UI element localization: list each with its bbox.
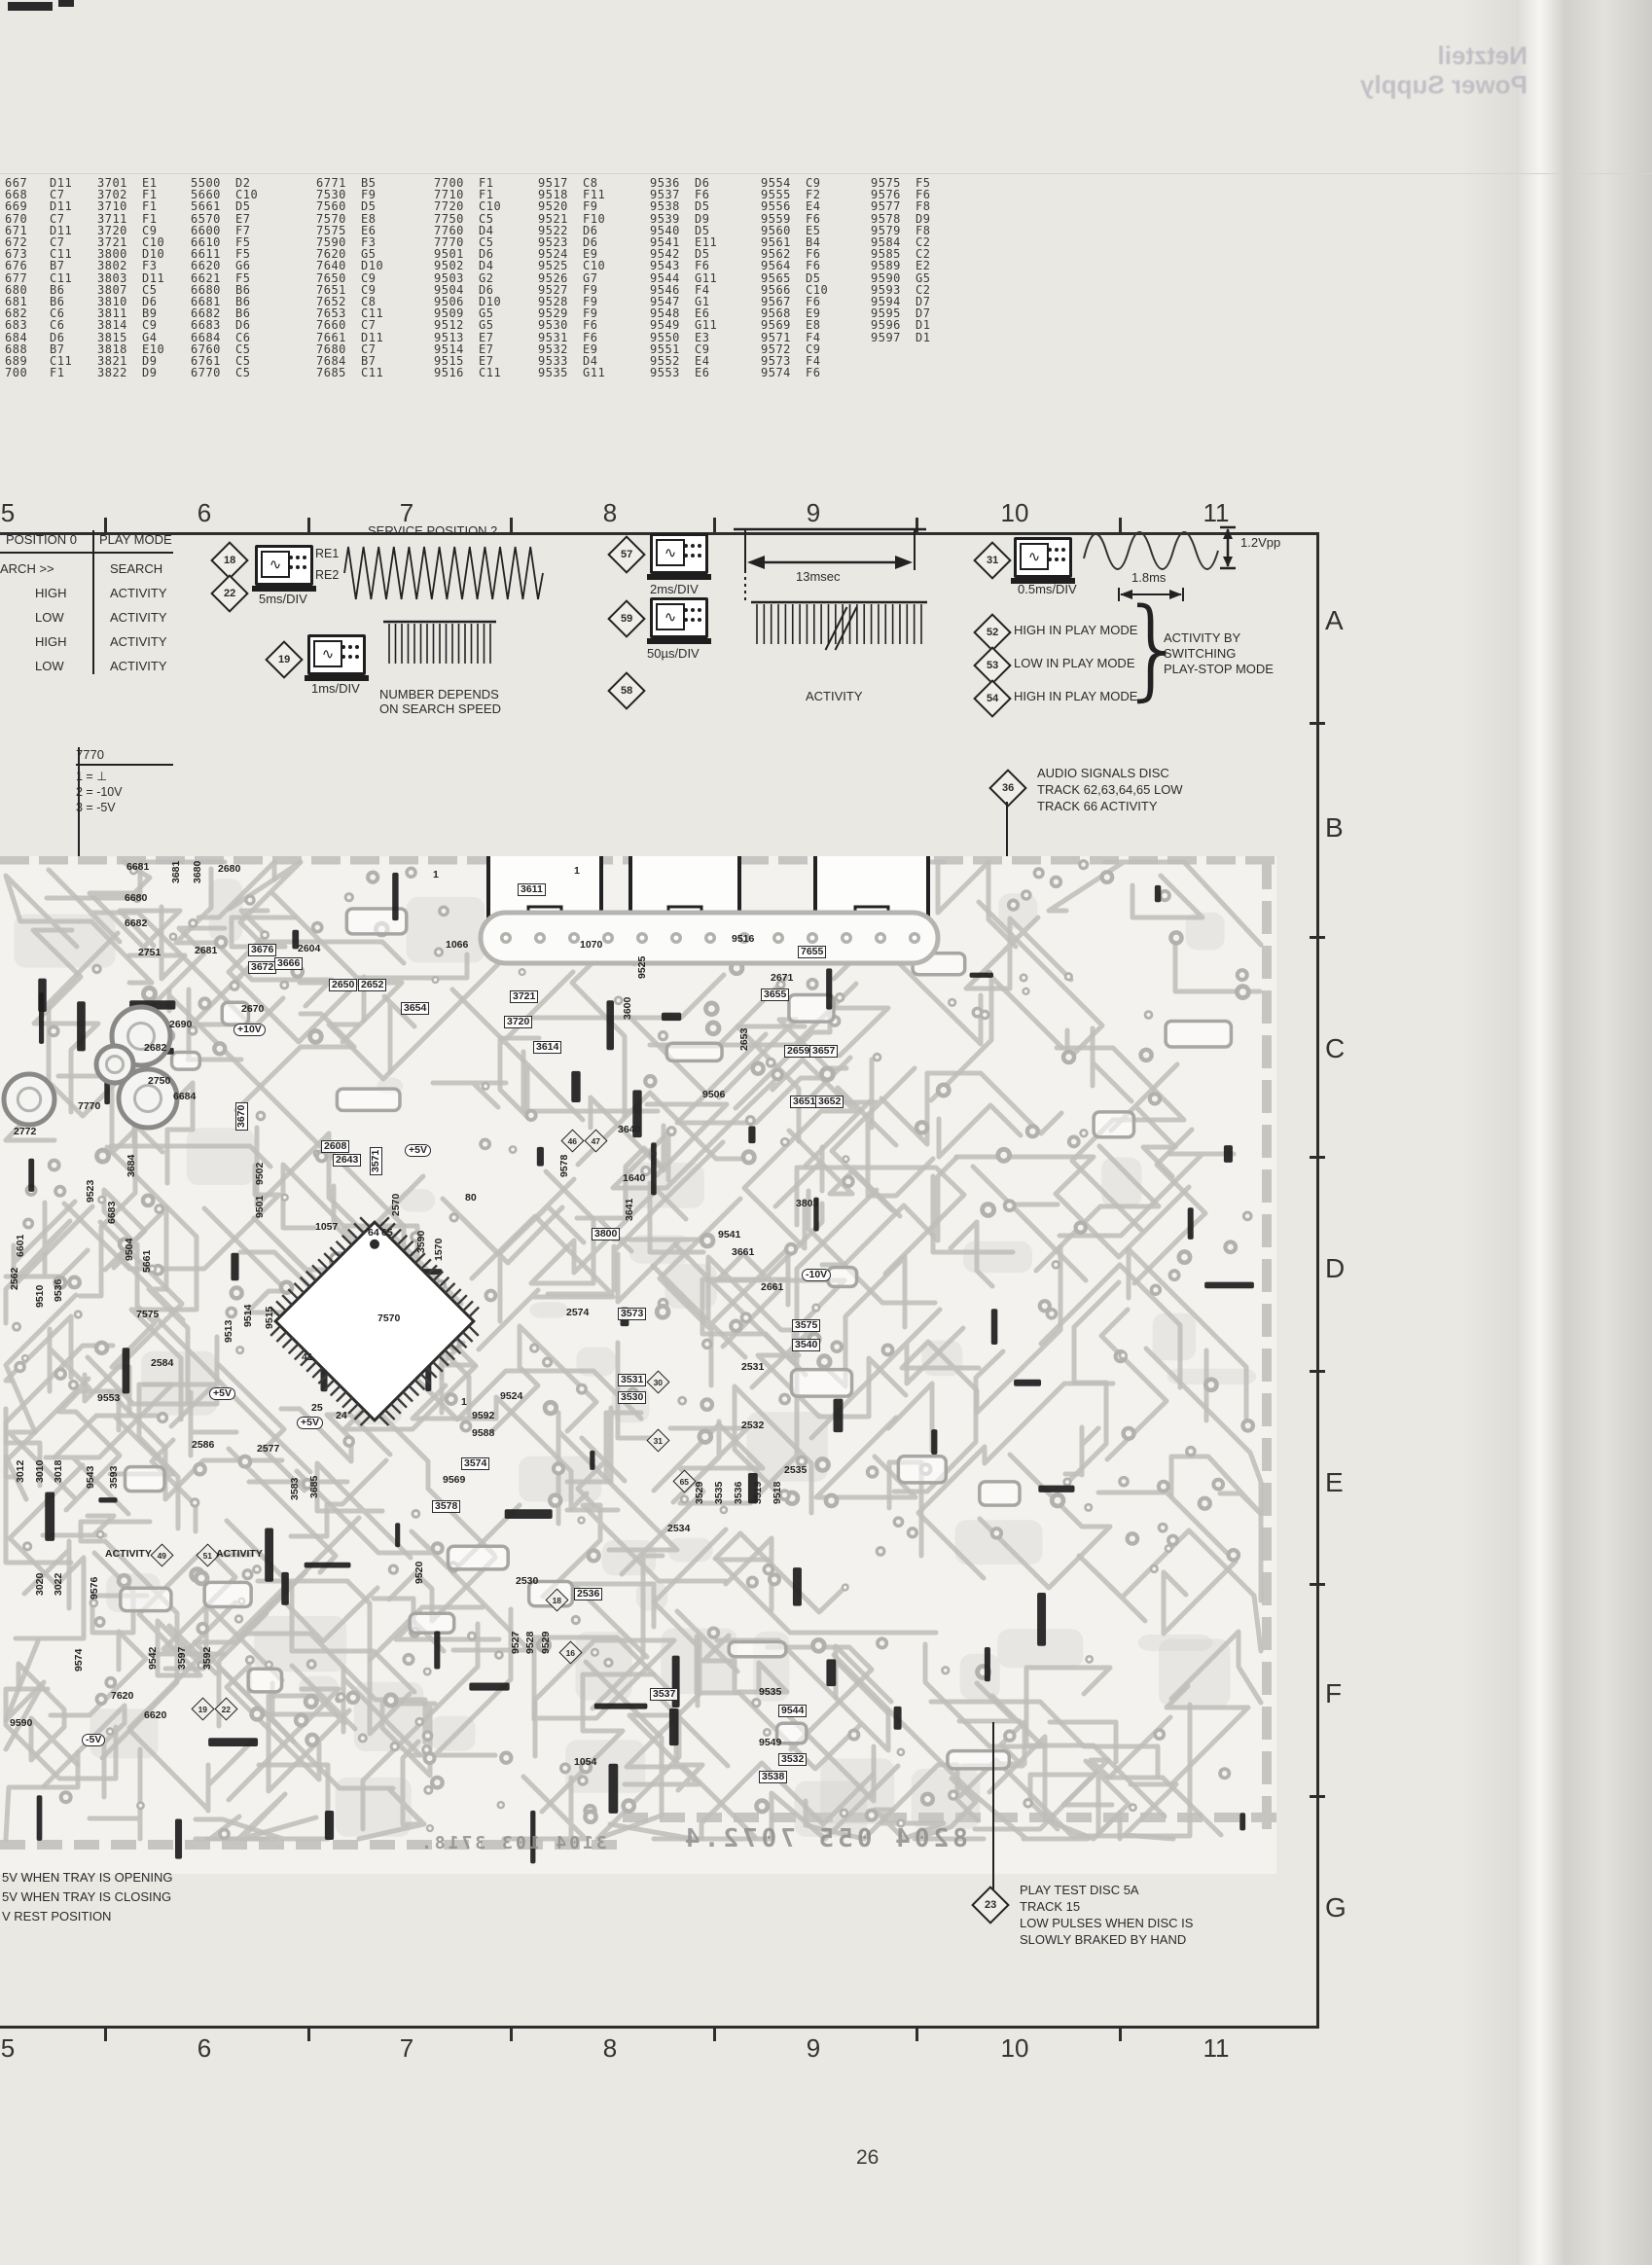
grid-ref: D4 xyxy=(479,260,493,271)
pcb-label: 2535 xyxy=(784,1465,807,1476)
component-ref: 5661 xyxy=(191,200,235,212)
callout-diamond-31: 31 xyxy=(973,541,1012,580)
component-ref: 669 xyxy=(5,200,50,212)
row-boundary-tick xyxy=(1310,936,1325,939)
component-ref: 9559 xyxy=(761,213,806,225)
grid-ref: C5 xyxy=(479,213,493,225)
grid-ref: D5 xyxy=(695,200,709,212)
pcb-label: 3578 xyxy=(432,1500,460,1513)
ruler-number: 9 xyxy=(807,2033,820,2064)
grid-ref: F10 xyxy=(583,213,605,225)
pcb-callout-diamond-65: 65 xyxy=(672,1469,696,1492)
pcb-label: 9553 xyxy=(97,1393,120,1404)
index-entry: 9544G11 xyxy=(650,272,717,284)
activity-comb-waveform xyxy=(749,599,929,652)
scope-unit-05ms: 0.5ms/DIV xyxy=(1018,582,1077,596)
pcb-label: 41 xyxy=(302,1352,313,1363)
mode-state: LOW xyxy=(35,659,64,673)
pcb-label: 9569 xyxy=(443,1475,465,1486)
pcb-label: 9588 xyxy=(472,1428,494,1439)
pcb-label: 9543 xyxy=(86,1466,96,1489)
mode-table-divider xyxy=(92,530,94,674)
index-column: 9517C89518F119520F99521F109522D69523D695… xyxy=(538,177,605,378)
grid-row-letter: D xyxy=(1325,1253,1345,1284)
pcb-label: 2577 xyxy=(257,1444,279,1455)
index-entry: 7660C7 xyxy=(316,319,383,331)
connector-7770-note: 7770 1 = ⊥2 = -10V3 = -5V xyxy=(76,747,183,815)
pcb-label: 9523 xyxy=(86,1180,96,1203)
index-entry: 683C6 xyxy=(5,319,72,331)
pcb-label: 2670 xyxy=(241,1004,264,1015)
index-entry: 6620G6 xyxy=(191,260,258,271)
pcb-label: 3654 xyxy=(401,1002,429,1015)
pcb-label: 2750 xyxy=(148,1076,170,1087)
component-ref: 9516 xyxy=(434,367,479,378)
index-entry: 9535G11 xyxy=(538,367,605,378)
pcb-label: 2586 xyxy=(192,1440,214,1451)
index-entry: 3814C9 xyxy=(97,319,164,331)
index-entry: 7640D10 xyxy=(316,260,383,271)
ruler-number: 5 xyxy=(1,498,15,528)
pcb-label: 1066 xyxy=(446,940,468,951)
grid-ref: C9 xyxy=(361,272,376,284)
pcb-label: 3519 xyxy=(753,1482,764,1504)
index-entry: 3822D9 xyxy=(97,367,164,378)
pcb-label: 1640 xyxy=(623,1173,645,1184)
component-location-index: 667D11668C7669D11670C7671D11672C7673C116… xyxy=(0,177,1002,386)
service-position-title: SERVICE POSITION 2 xyxy=(368,523,497,538)
pcb-label: 3593 xyxy=(109,1466,120,1489)
grid-row-letter: G xyxy=(1325,1892,1347,1923)
scope-unit-1ms: 1ms/DIV xyxy=(311,681,360,696)
component-ref: 9596 xyxy=(871,319,916,331)
pcb-label: 5661 xyxy=(142,1250,153,1273)
pcb-label: 3530 xyxy=(618,1391,646,1404)
scope-knobs-icon xyxy=(698,544,701,548)
component-ref: 9525 xyxy=(538,260,583,271)
pcb-label: 2574 xyxy=(566,1308,589,1318)
pcb-label: 9574 xyxy=(74,1649,85,1672)
pcb-label: 9516 xyxy=(732,934,754,945)
grid-ref: F5 xyxy=(235,272,250,284)
pcb-label: 3529 xyxy=(695,1482,705,1504)
component-ref: 9538 xyxy=(650,200,695,212)
grid-ref: G2 xyxy=(479,272,493,284)
pcb-label: 3657 xyxy=(809,1045,838,1058)
pcb-label: 3676 xyxy=(248,944,276,956)
pcb-label: 3536 xyxy=(734,1482,744,1504)
index-entry: 9589E2 xyxy=(871,260,930,271)
callout-diamond-36: 36 xyxy=(988,769,1027,808)
pcb-label: 6681 xyxy=(126,862,149,873)
pcb-label: 2680 xyxy=(218,864,240,875)
pcb-label: 2682 xyxy=(144,1043,166,1054)
pcb-label: 1 xyxy=(433,870,439,881)
index-entry: 9503G2 xyxy=(434,272,501,284)
grid-ref: C10 xyxy=(583,260,605,271)
pcb-label: 9501 xyxy=(255,1196,266,1218)
scope-knobs-icon xyxy=(698,608,701,612)
component-ref: 9521 xyxy=(538,213,583,225)
index-entry: 9569E8 xyxy=(761,319,828,331)
grid-ref: C9 xyxy=(142,319,157,331)
pcb-label: 7770 xyxy=(78,1101,100,1112)
pcb-callout-diamond-46: 46 xyxy=(560,1129,584,1152)
pcb-label: 3574 xyxy=(461,1457,489,1470)
pcb-callout-diamond-47: 47 xyxy=(584,1129,607,1152)
ruler-number: 6 xyxy=(198,2033,211,2064)
index-entry: 9531F6 xyxy=(538,332,605,343)
play-mode-table: POSITION 0 PLAY MODE ARCH >>SEARCHHIGHAC… xyxy=(0,530,175,676)
scope-screen-icon: ∿ xyxy=(1020,543,1049,570)
component-ref: 9565 xyxy=(761,272,806,284)
ruler-number: 7 xyxy=(400,2033,413,2064)
component-ref: 7661 xyxy=(316,332,361,343)
pcb-label: 9542 xyxy=(148,1647,159,1670)
scope-knobs-icon xyxy=(355,645,359,649)
pcb-callout-diamond-22: 22 xyxy=(214,1697,237,1720)
component-ref: 3803 xyxy=(97,272,142,284)
sine-burst-waveform xyxy=(342,543,547,603)
bleed-through-title: Netzteil Power Supply xyxy=(1236,41,1527,99)
pcb-label: 1 xyxy=(574,866,580,877)
note-line: TRACK 66 ACTIVITY xyxy=(1037,798,1183,814)
index-entry: 9539D9 xyxy=(650,213,717,225)
index-column: 5500D25660C105661D56570E76600F76610F5661… xyxy=(191,177,258,378)
mode-state: HIGH xyxy=(35,586,67,600)
pcb-label: 9515 xyxy=(265,1307,275,1329)
grid-ref: E7 xyxy=(479,332,493,343)
grid-ref: F6 xyxy=(806,367,820,378)
scope-unit-5ms: 5ms/DIV xyxy=(259,592,307,606)
connector-pin-row: 1 = ⊥ xyxy=(76,769,183,784)
index-entry: 9553E6 xyxy=(650,367,717,378)
pcb-label: 9529 xyxy=(541,1632,552,1654)
component-ref: 7660 xyxy=(316,319,361,331)
pcb-label: 3803 xyxy=(796,1199,818,1209)
component-ref: 3815 xyxy=(97,332,142,343)
pcb-label: 2608 xyxy=(321,1140,349,1153)
component-ref: 677 xyxy=(5,272,50,284)
component-ref: 6621 xyxy=(191,272,235,284)
note-line: NUMBER DEPENDS xyxy=(379,687,501,701)
pcb-label: 3597 xyxy=(177,1647,188,1670)
pcb-label: 80 xyxy=(465,1193,477,1204)
grid-ref: C7 xyxy=(50,213,64,225)
component-ref: 9544 xyxy=(650,272,695,284)
component-ref: 9530 xyxy=(538,319,583,331)
index-entry: 9538D5 xyxy=(650,200,717,212)
pcb-callout-diamond-31: 31 xyxy=(646,1428,669,1452)
grid-ref: G4 xyxy=(142,332,157,343)
component-ref: 9526 xyxy=(538,272,583,284)
pcb-label: -10V xyxy=(802,1269,831,1281)
pcb-label: 1057 xyxy=(315,1222,338,1233)
grid-ref: D6 xyxy=(235,319,250,331)
index-entry: 676B7 xyxy=(5,260,72,271)
pcb-label: 9576 xyxy=(90,1577,100,1600)
index-entry: 9549G11 xyxy=(650,319,717,331)
vpp-measure xyxy=(1218,525,1238,570)
component-ref: 7570 xyxy=(316,213,361,225)
grid-ref: C5 xyxy=(235,367,250,378)
callout-diamond-23: 23 xyxy=(971,1886,1010,1924)
connector-pin-row: 3 = -5V xyxy=(76,800,183,815)
scanned-service-manual-page: Netzteil Power Supply 667D11668C7669D116… xyxy=(0,0,1652,2265)
mode-state: ARCH >> xyxy=(0,561,54,576)
pcb-label: 9590 xyxy=(10,1718,32,1729)
component-ref: 9597 xyxy=(871,332,916,343)
pcb-label: 9513 xyxy=(224,1320,234,1343)
grid-ref: D1 xyxy=(916,332,930,343)
connector-7770-rows: 1 = ⊥2 = -10V3 = -5V xyxy=(76,769,183,815)
pcb-label: 6601 xyxy=(16,1235,26,1257)
ruler-tick xyxy=(713,2026,716,2041)
index-entry: 9559F6 xyxy=(761,213,828,225)
pcb-label: 64 xyxy=(368,1228,379,1239)
mode-result: ACTIVITY xyxy=(110,634,167,649)
grid-row-letter: C xyxy=(1325,1033,1345,1064)
component-ref: 6570 xyxy=(191,213,235,225)
index-entry: 9571F4 xyxy=(761,332,828,343)
13msec-label: 13msec xyxy=(796,569,841,584)
component-ref: 6770 xyxy=(191,367,235,378)
grid-ref: F9 xyxy=(583,200,597,212)
callout-diamond-22: 22 xyxy=(210,574,249,613)
callout-leader-line xyxy=(992,1722,994,1897)
grid-ref: D11 xyxy=(361,332,383,343)
pcb-mirrored-part-number: 3104 103 3718. xyxy=(418,1833,607,1853)
grid-ref: D11 xyxy=(142,272,164,284)
pcb-label: 2584 xyxy=(151,1358,173,1369)
index-entry: 700F1 xyxy=(5,367,72,378)
pcb-label: 6680 xyxy=(125,893,147,904)
component-ref: 9574 xyxy=(761,367,806,378)
note-line: TRACK 15 xyxy=(1020,1898,1193,1915)
pcb-label: 9520 xyxy=(414,1562,425,1584)
grid-ref: F1 xyxy=(50,367,64,378)
component-ref: 9535 xyxy=(538,367,583,378)
pcb-label: 9510 xyxy=(35,1285,46,1308)
mode-table-header-right: PLAY MODE xyxy=(99,532,172,547)
index-entry: 9564F6 xyxy=(761,260,828,271)
pcb-label: 3018 xyxy=(54,1460,64,1483)
grid-ref: E8 xyxy=(361,213,376,225)
note-line: PLAY TEST DISC 5A xyxy=(1020,1882,1193,1898)
row-boundary-tick xyxy=(1310,1156,1325,1159)
index-entry: 3710F1 xyxy=(97,200,164,212)
ruler-tick xyxy=(104,2026,107,2041)
grid-ref: F3 xyxy=(142,260,157,271)
component-ref: 7685 xyxy=(316,367,361,378)
pcb-label: ACTIVITY xyxy=(105,1549,152,1560)
pcb-label: 2530 xyxy=(516,1576,538,1587)
grid-ref: F6 xyxy=(806,213,820,225)
grid-ref: G11 xyxy=(695,319,717,331)
scope-screen-icon: ∿ xyxy=(656,603,685,630)
pcb-label: 3661 xyxy=(732,1247,754,1258)
component-ref: 3814 xyxy=(97,319,142,331)
index-entry: 684D6 xyxy=(5,332,72,343)
grid-ref: D6 xyxy=(50,332,64,343)
component-ref: 670 xyxy=(5,213,50,225)
note-line: LOW PULSES WHEN DISC IS xyxy=(1020,1915,1193,1931)
pcb-label: 6620 xyxy=(144,1710,166,1721)
index-entry: 9578D9 xyxy=(871,213,930,225)
pcb-label: 2652 xyxy=(358,979,386,991)
scan-hairline xyxy=(0,173,1652,174)
pcb-callout-diamond-49: 49 xyxy=(150,1543,173,1566)
grid-ref: C11 xyxy=(361,367,383,378)
callout-diamond-19: 19 xyxy=(265,640,304,679)
index-entry: 9530F6 xyxy=(538,319,605,331)
component-ref: 9502 xyxy=(434,260,479,271)
component-ref: 9556 xyxy=(761,200,806,212)
pcb-label: 3614 xyxy=(533,1041,561,1054)
pcb-label: 9527 xyxy=(511,1632,521,1654)
scope-unit-50us: 50µs/DIV xyxy=(647,646,700,661)
index-entry: 7720C10 xyxy=(434,200,501,212)
pcb-label: 2531 xyxy=(741,1362,764,1373)
index-entry: 670C7 xyxy=(5,213,72,225)
grid-ref: G7 xyxy=(583,272,597,284)
grid-ref: D9 xyxy=(916,213,930,225)
component-ref: 9531 xyxy=(538,332,583,343)
pcb-label: 3720 xyxy=(504,1016,532,1028)
pcb-label: 2570 xyxy=(391,1194,402,1216)
index-entry: 9590G5 xyxy=(871,272,930,284)
grid-ref: E7 xyxy=(235,213,250,225)
grid-ref: F6 xyxy=(806,260,820,271)
oscilloscope-icon: ∿ xyxy=(650,597,708,638)
pcb-label: 3575 xyxy=(792,1319,820,1332)
pcb-label: 9578 xyxy=(559,1155,570,1177)
pcb-label: 3590 xyxy=(416,1231,427,1253)
component-ref: 9549 xyxy=(650,319,695,331)
grid-row-letter: E xyxy=(1325,1467,1344,1498)
grid-ref: F6 xyxy=(695,260,709,271)
mode-result: SEARCH xyxy=(110,561,162,576)
bleed-title-line2: Power Supply xyxy=(1236,70,1527,99)
grid-ref: D1 xyxy=(916,319,930,331)
pcb-label: 3641 xyxy=(625,1199,635,1221)
ruler-number: 6 xyxy=(198,498,211,528)
grid-ref: F8 xyxy=(916,200,930,212)
mode-result: ACTIVITY xyxy=(110,610,167,625)
pcb-label: 9525 xyxy=(637,956,648,979)
pcb-label: 3685 xyxy=(309,1476,320,1498)
grid-ref: C6 xyxy=(50,319,64,331)
component-ref: 9550 xyxy=(650,332,695,343)
connector-7770-title: 7770 xyxy=(76,747,183,762)
index-column: 3701E13702F13710F13711F13720C93721C10380… xyxy=(97,177,164,378)
grid-ref: E8 xyxy=(806,319,820,331)
pcb-label: -5V xyxy=(82,1734,105,1746)
page-number: 26 xyxy=(856,2146,879,2170)
pcb-label: 2643 xyxy=(333,1154,361,1167)
note-line: PLAY-STOP MODE xyxy=(1164,662,1274,677)
row-boundary-tick xyxy=(1310,1370,1325,1373)
index-entry: 3803D11 xyxy=(97,272,164,284)
mode-result: ACTIVITY xyxy=(110,659,167,673)
index-column: 9536D69537F69538D59539D99540D59541E11954… xyxy=(650,177,717,378)
oscilloscope-icon: ∿ xyxy=(255,545,313,586)
pcb-label: 3680 xyxy=(193,861,203,883)
index-entry: 9565D5 xyxy=(761,272,828,284)
index-entry: 7650C9 xyxy=(316,272,383,284)
pcb-label: 2653 xyxy=(739,1028,750,1051)
pcb-callout-diamond-19: 19 xyxy=(191,1697,214,1720)
index-entry: 9596D1 xyxy=(871,319,930,331)
index-entry: 9512G5 xyxy=(434,319,501,331)
index-entry: 9516C11 xyxy=(434,367,501,378)
page-fold-shadow xyxy=(1459,0,1652,2265)
18ms-label: 1.8ms xyxy=(1131,570,1166,585)
sine-wave xyxy=(1082,521,1220,570)
scope-unit-2ms: 2ms/DIV xyxy=(650,582,699,596)
component-ref: 9577 xyxy=(871,200,916,212)
scan-artifact xyxy=(8,2,53,11)
pcb-label: +5V xyxy=(405,1144,431,1157)
pcb-label: 2751 xyxy=(138,948,161,958)
callout-diamond-58: 58 xyxy=(607,671,646,710)
component-ref: 6620 xyxy=(191,260,235,271)
pcb-label: 9506 xyxy=(702,1090,725,1100)
pcb-label: +5V xyxy=(209,1387,235,1400)
pcb-label: 3666 xyxy=(274,957,303,970)
ruler-number: 8 xyxy=(603,2033,617,2064)
grid-row-letters: ABCDEFG xyxy=(1304,532,1382,2029)
index-entry: 9574F6 xyxy=(761,367,828,378)
note-line: SWITCHING xyxy=(1164,646,1274,662)
component-ref: 683 xyxy=(5,319,50,331)
component-ref: 9513 xyxy=(434,332,479,343)
pcb-label: 65 xyxy=(381,1228,393,1239)
grid-ref: G5 xyxy=(479,319,493,331)
callout-diamond-54: 54 xyxy=(973,679,1012,718)
pcb-label: 9524 xyxy=(500,1391,522,1402)
pcb-label: ACTIVITY xyxy=(216,1549,263,1560)
pcb-label: 3600 xyxy=(623,997,633,1020)
pcb-label: 6683 xyxy=(107,1202,118,1224)
pcb-label: 3537 xyxy=(650,1688,678,1701)
pcb-label: 3012 xyxy=(16,1460,26,1483)
component-ref: 9543 xyxy=(650,260,695,271)
grid-ref: D5 xyxy=(235,200,250,212)
scan-artifact xyxy=(58,0,74,7)
index-entry: 3815G4 xyxy=(97,332,164,343)
13msec-measure xyxy=(732,525,931,603)
index-entry: 669D11 xyxy=(5,200,72,212)
ruler-tick xyxy=(916,2026,918,2041)
ruler-number: 5 xyxy=(1,2033,15,2064)
grid-ref: E3 xyxy=(695,332,709,343)
index-entry: 5661D5 xyxy=(191,200,258,212)
index-entry: 6621F5 xyxy=(191,272,258,284)
note-line: ON SEARCH SPEED xyxy=(379,701,501,716)
index-entry: 9526G7 xyxy=(538,272,605,284)
pcb-label: 2681 xyxy=(195,946,217,956)
index-entry: 9597D1 xyxy=(871,332,930,343)
ruler-tick xyxy=(307,518,310,533)
index-entry: 9525C10 xyxy=(538,260,605,271)
pcb-label: 2536 xyxy=(574,1588,602,1600)
pcb-label: 7655 xyxy=(798,946,826,958)
oscilloscope-icon: ∿ xyxy=(307,634,366,675)
pulse-comb-waveform xyxy=(381,619,498,673)
component-ref: 9564 xyxy=(761,260,806,271)
ruler-tick xyxy=(1119,2026,1122,2041)
